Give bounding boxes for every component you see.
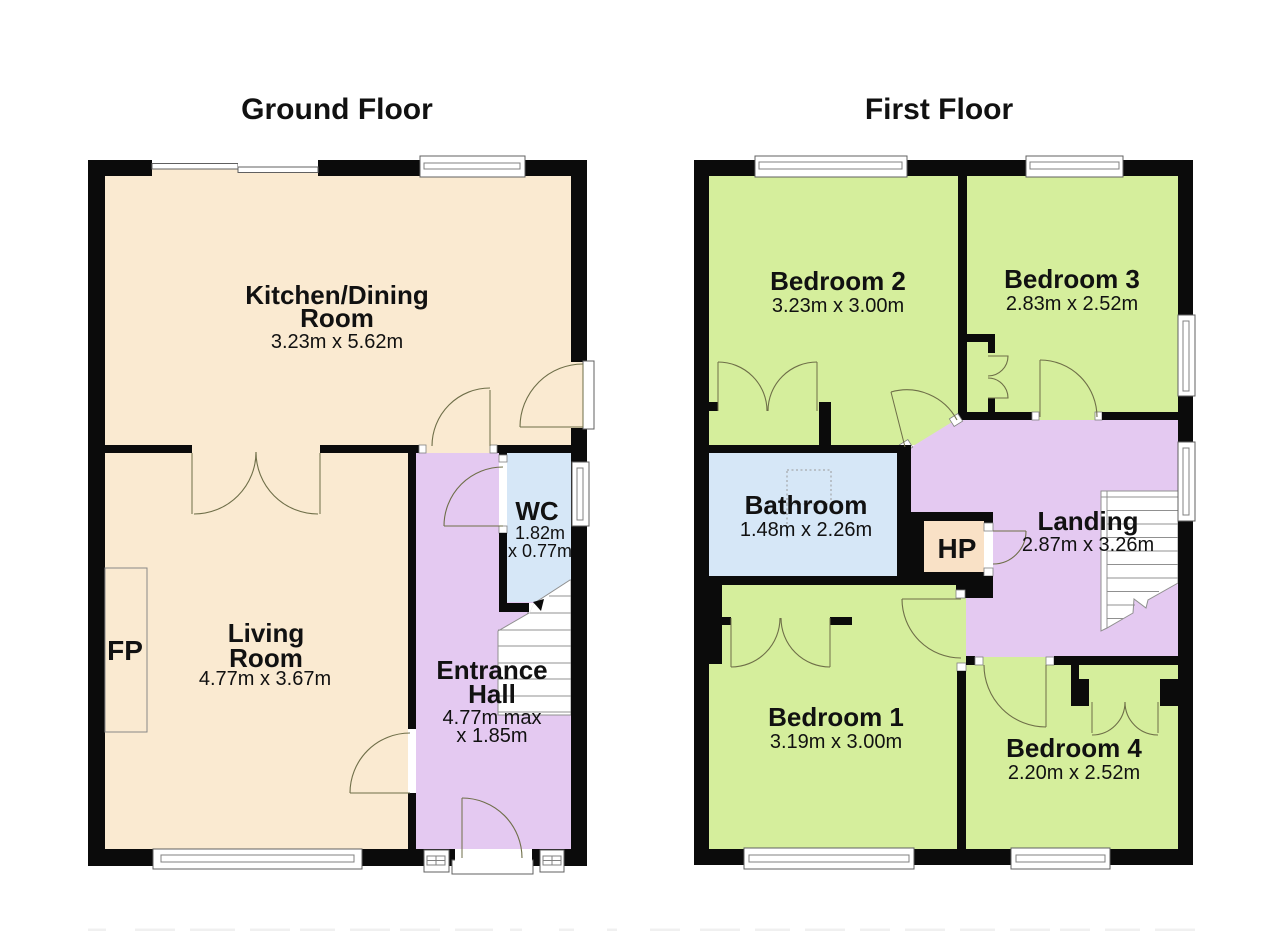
svg-text:2.83m x 2.52m: 2.83m x 2.52m xyxy=(1006,293,1138,315)
svg-text:Room: Room xyxy=(300,303,374,333)
svg-text:x 0.77m: x 0.77m xyxy=(508,541,572,561)
svg-text:Bathroom: Bathroom xyxy=(745,490,868,520)
svg-text:Bedroom 2: Bedroom 2 xyxy=(770,266,906,296)
svg-text:FP: FP xyxy=(107,635,143,666)
svg-text:2.87m x 3.26m: 2.87m x 3.26m xyxy=(1022,534,1154,556)
svg-text:Bedroom 4: Bedroom 4 xyxy=(1006,733,1142,763)
svg-text:2.20m x 2.52m: 2.20m x 2.52m xyxy=(1008,762,1140,784)
svg-text:WC: WC xyxy=(515,496,559,526)
svg-text:Ground Floor: Ground Floor xyxy=(241,93,433,126)
svg-text:3.23m x 5.62m: 3.23m x 5.62m xyxy=(271,331,403,353)
svg-text:3.19m x 3.00m: 3.19m x 3.00m xyxy=(770,731,902,753)
svg-text:4.77m x 3.67m: 4.77m x 3.67m xyxy=(199,668,331,690)
svg-text:HP: HP xyxy=(938,533,977,564)
svg-text:x 1.85m: x 1.85m xyxy=(456,725,527,747)
svg-text:Hall: Hall xyxy=(468,679,516,709)
svg-text:Bedroom 1: Bedroom 1 xyxy=(768,702,904,732)
svg-text:Bedroom 3: Bedroom 3 xyxy=(1004,264,1140,294)
svg-text:First Floor: First Floor xyxy=(865,93,1014,126)
svg-text:1.48m x 2.26m: 1.48m x 2.26m xyxy=(740,519,872,541)
svg-text:Landing: Landing xyxy=(1037,506,1138,536)
svg-text:1.82m: 1.82m xyxy=(515,523,565,543)
svg-text:3.23m x 3.00m: 3.23m x 3.00m xyxy=(772,295,904,317)
